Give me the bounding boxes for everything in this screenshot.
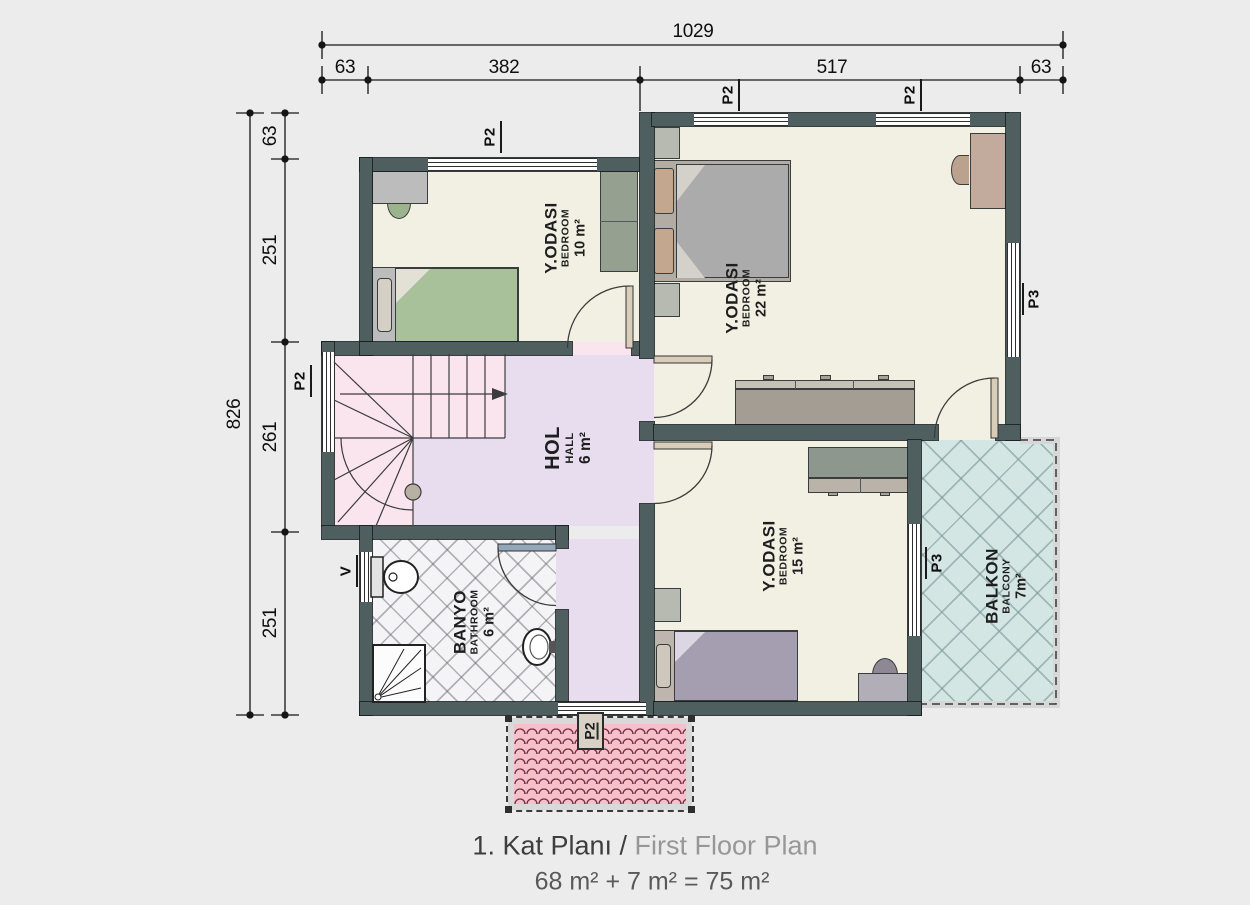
- wardrobe-divider: [600, 221, 638, 222]
- chair-icon: [951, 155, 969, 185]
- window: [1007, 243, 1020, 357]
- window-tag-p2: P2: [900, 78, 920, 112]
- window: [428, 158, 597, 171]
- room-name-tr: BANYO: [450, 589, 469, 654]
- canopy-tag-p2: P2: [577, 712, 604, 750]
- nightstand: [650, 127, 680, 159]
- tag-text: P2: [583, 722, 599, 739]
- balcony-parapet-bottom: [922, 701, 1060, 708]
- room-label-bedroom-10: Y.ODASI BEDROOM 10 m²: [541, 202, 588, 274]
- balcony-parapet-right: [1053, 440, 1060, 708]
- window-tag-p3: P3: [927, 546, 947, 580]
- window-tag-v: V: [336, 554, 356, 588]
- dim-segment: 251: [260, 608, 282, 639]
- bed-pillow: [654, 228, 674, 274]
- stairs-floor-lower: [334, 438, 413, 526]
- desk: [858, 673, 914, 704]
- wall: [632, 342, 640, 355]
- blanket-fold: [677, 165, 705, 201]
- plan-area-formula: 68 m² + 7 m² = 75 m²: [535, 868, 770, 897]
- window-tag-p3: P3: [1024, 282, 1044, 316]
- tag-line: [925, 547, 927, 579]
- tag-text: P2: [720, 85, 737, 104]
- room-name-tr: Y.ODASI: [541, 202, 560, 274]
- nightstand: [650, 588, 681, 622]
- bed-pillow: [377, 278, 392, 332]
- balcony-doorway-floor: [938, 425, 996, 440]
- desk: [372, 171, 428, 204]
- wardrobe-divider: [860, 478, 861, 493]
- plan-title-turkish: 1. Kat Planı /: [472, 831, 627, 861]
- wall: [556, 610, 568, 715]
- window-tag-p2: P2: [480, 120, 500, 154]
- wall: [640, 422, 654, 440]
- bed-pillow: [654, 168, 674, 214]
- wall: [654, 425, 938, 440]
- room-label-bedroom-15: Y.ODASI BEDROOM 15 m²: [759, 520, 806, 592]
- wardrobe-divider: [853, 380, 854, 389]
- room-area: 6 m²: [577, 426, 594, 470]
- wall: [640, 504, 654, 715]
- wall: [322, 526, 568, 539]
- wardrobe-knob: [880, 492, 890, 496]
- room-area: 22 m²: [753, 262, 769, 334]
- room-label-bedroom-22: Y.ODASI BEDROOM 22 m²: [722, 262, 769, 334]
- dim-segment: 517: [817, 57, 848, 79]
- wall: [360, 342, 572, 355]
- wardrobe: [808, 447, 914, 478]
- room-name-en: BEDROOM: [779, 520, 791, 592]
- window: [876, 113, 970, 126]
- stairs-floor-upper: [334, 354, 505, 438]
- window: [322, 352, 335, 452]
- wardrobe-long: [735, 389, 915, 425]
- blanket-fold: [677, 242, 705, 278]
- dim-segment: 63: [1031, 57, 1052, 79]
- tag-line: [738, 79, 740, 111]
- room-name-tr: Y.ODASI: [759, 520, 778, 592]
- room-area: 15 m²: [790, 520, 806, 592]
- room-label-balcony: BALKON BALCONY 7m²: [982, 548, 1029, 624]
- wardrobe-divider: [795, 380, 796, 389]
- room-name-tr: Y.ODASI: [722, 262, 741, 334]
- room-label-bathroom: BANYO BATHROOM 6 m²: [450, 589, 497, 654]
- floor-plan: 1029 63 382 517 63 826 63 251 261 251 Y.…: [0, 0, 1250, 905]
- tag-line: [1022, 283, 1024, 315]
- window: [694, 113, 788, 126]
- room-name-en: BATHROOM: [470, 589, 482, 654]
- nightstand: [650, 283, 680, 317]
- dim-segment: 382: [489, 57, 520, 79]
- tag-line: [920, 79, 922, 111]
- bed-pillow: [656, 644, 671, 688]
- wall: [654, 702, 921, 715]
- tag-line: [310, 365, 312, 397]
- room-name-en: BEDROOM: [742, 262, 754, 334]
- bedroom-10-doorway-floor: [572, 342, 632, 355]
- wardrobe-long-top: [735, 380, 915, 389]
- tag-text: P3: [929, 553, 946, 572]
- room-area: 7m²: [1013, 548, 1029, 624]
- tag-text: P2: [292, 371, 309, 390]
- wall: [556, 526, 568, 548]
- window-tag-p2: P2: [290, 364, 310, 398]
- dim-total-width: 1029: [672, 21, 713, 43]
- window-tag-p2: P2: [718, 78, 738, 112]
- wall: [360, 158, 372, 355]
- tag-text: P2: [482, 127, 499, 146]
- room-name-en: HALL: [564, 426, 576, 470]
- room-name-en: BALCONY: [1002, 548, 1014, 624]
- blanket-fold: [675, 632, 705, 662]
- dim-total-height: 826: [224, 399, 246, 430]
- wardrobe-front: [808, 478, 914, 493]
- wardrobe-knob: [828, 492, 838, 496]
- dim-segment: 63: [335, 57, 356, 79]
- dim-segment: 251: [260, 235, 282, 266]
- wardrobe-knob: [763, 375, 774, 380]
- dim-segment: 261: [260, 422, 282, 453]
- tag-text: V: [338, 566, 355, 577]
- room-name-tr: HOL: [542, 426, 564, 470]
- plan-title: 1. Kat Planı / First Floor Plan: [472, 831, 817, 862]
- wall: [640, 113, 654, 358]
- room-area: 6 m²: [481, 589, 497, 654]
- wardrobe-knob: [820, 375, 831, 380]
- room-label-hall: HOL HALL 6 m²: [542, 426, 594, 470]
- room-name-tr: BALKON: [982, 548, 1001, 624]
- window: [360, 552, 373, 602]
- desk: [970, 133, 1006, 209]
- room-name-en: BEDROOM: [561, 202, 573, 274]
- dim-segment: 63: [260, 126, 282, 147]
- tag-line: [500, 121, 502, 153]
- blanket-fold: [396, 269, 430, 303]
- window: [908, 524, 921, 636]
- tag-text: P2: [902, 85, 919, 104]
- wardrobe-knob: [878, 375, 889, 380]
- plan-title-english: First Floor Plan: [627, 831, 818, 861]
- wall: [996, 425, 1020, 440]
- tag-text: P3: [1026, 289, 1043, 308]
- room-area: 10 m²: [572, 202, 588, 274]
- tag-line: [356, 555, 358, 587]
